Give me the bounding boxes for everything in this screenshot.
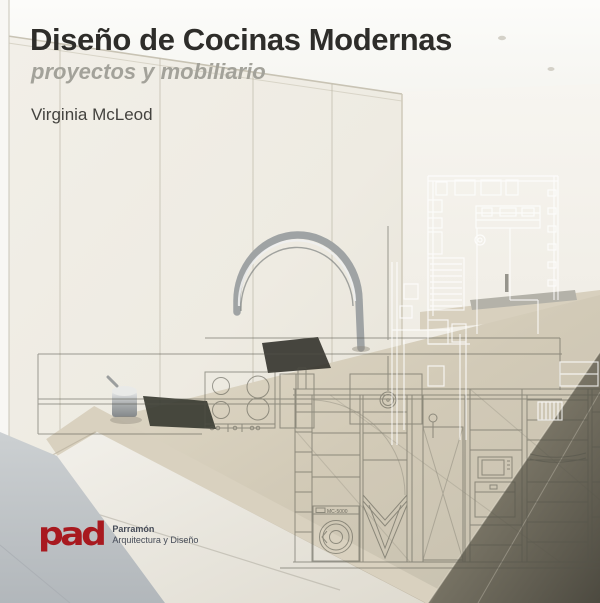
- floor-plan-walls: [428, 176, 558, 320]
- publisher-tagline: Arquitectura y Diseño: [112, 535, 198, 547]
- book-cover: MC-5000: [0, 0, 600, 603]
- floor-plan-comb-detail: [538, 402, 562, 420]
- book-title: Diseño de Cocinas Modernas: [30, 22, 452, 58]
- floor-plan-island: [475, 206, 540, 245]
- publisher-block: pad Parramón Arquitectura y Diseño: [38, 521, 198, 550]
- publisher-name: Parramón: [112, 524, 198, 536]
- floor-plan-appliances: [428, 180, 518, 254]
- floor-plan-overlay: [0, 0, 600, 603]
- pad-logo: pad: [38, 522, 103, 548]
- author-name: Virginia McLeod: [31, 105, 153, 125]
- publisher-text: Parramón Arquitectura y Diseño: [112, 524, 198, 547]
- floor-plan-column-ticks: [548, 190, 556, 286]
- floor-plan-lower-rooms: [392, 228, 598, 445]
- book-subtitle: proyectos y mobiliario: [31, 59, 266, 85]
